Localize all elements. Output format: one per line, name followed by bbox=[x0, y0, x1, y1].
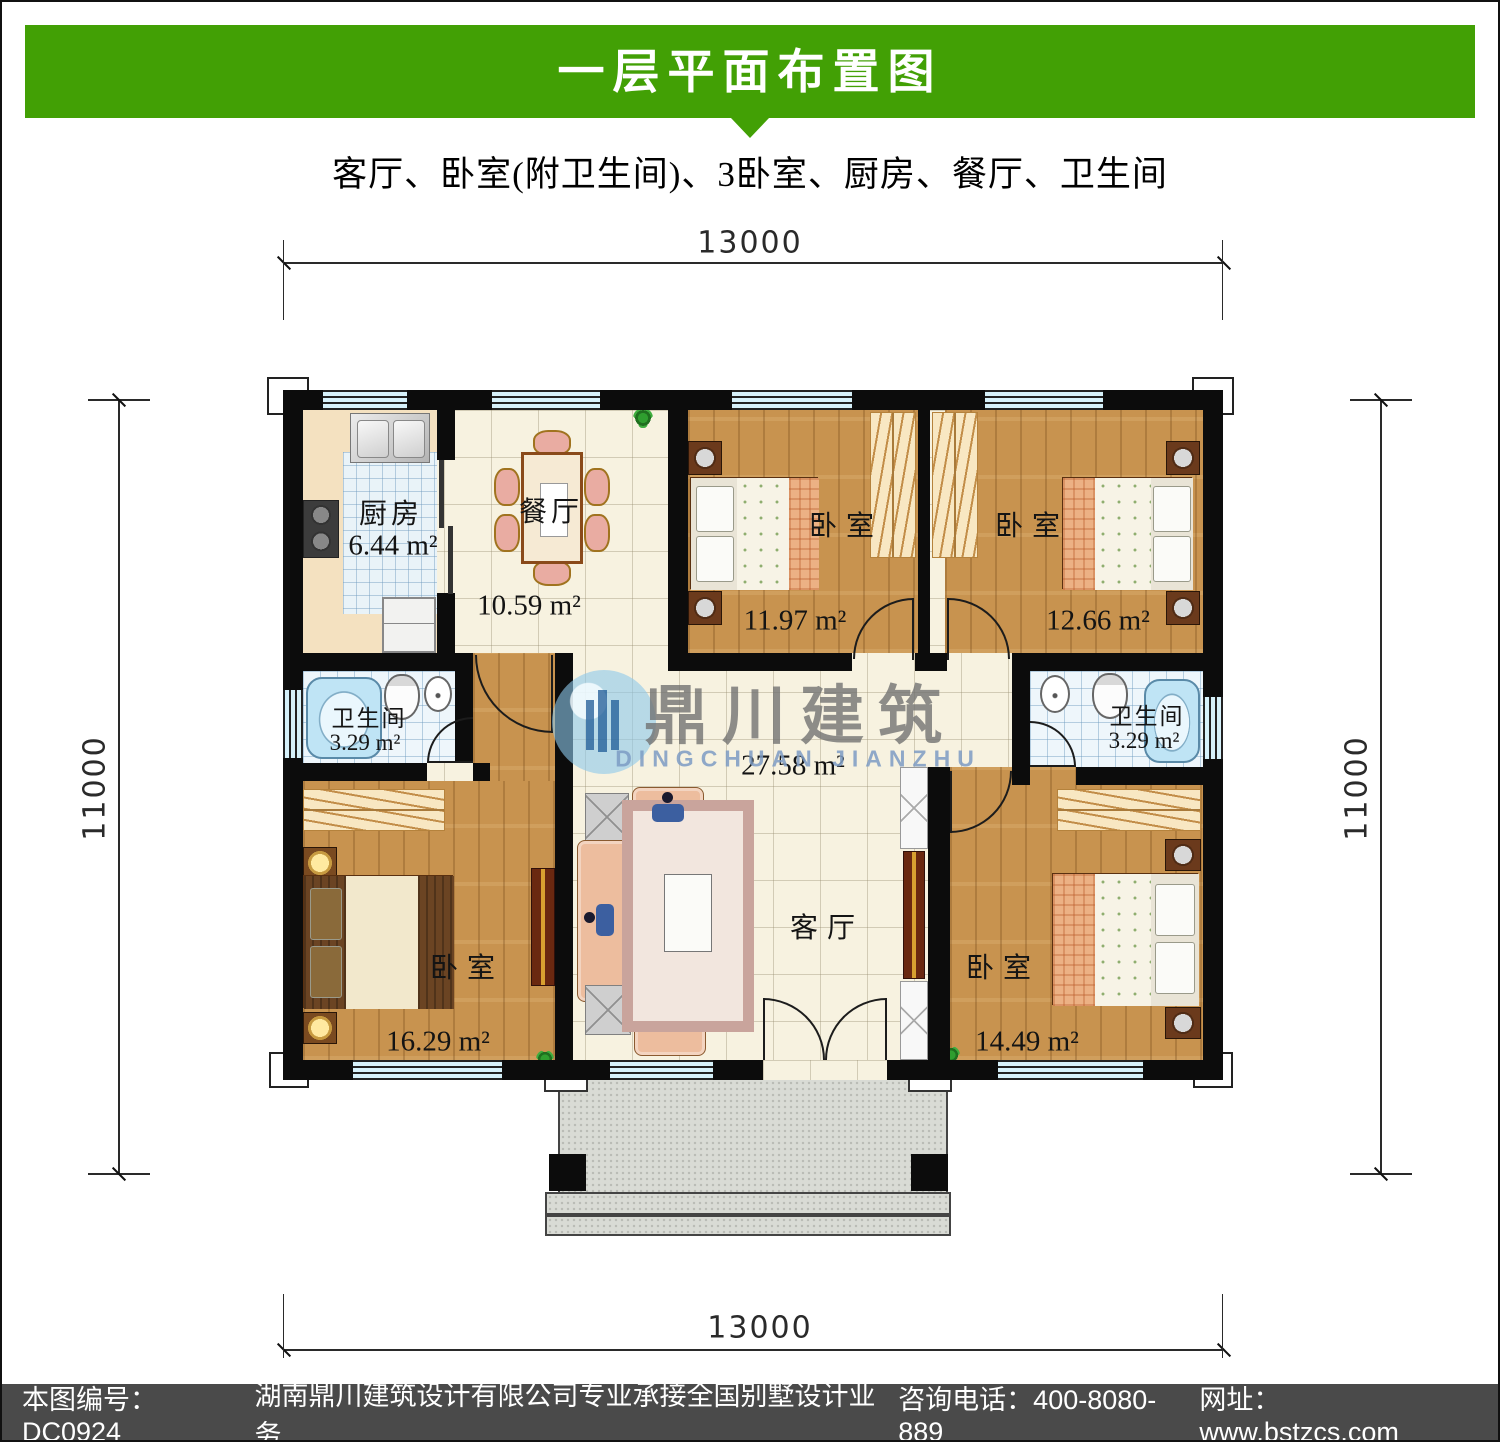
footer-bar: 本图编号：DC0924 湖南鼎川建筑设计有限公司专业承接全国别墅设计业务 咨询电… bbox=[0, 1384, 1500, 1442]
page-title: 一层平面布置图 bbox=[25, 25, 1475, 118]
dim-ext bbox=[283, 240, 284, 320]
banner-pointer-icon bbox=[731, 118, 769, 138]
bedroom-area: 11.97 m² bbox=[744, 605, 847, 638]
bathroom-area: 3.29 m² bbox=[330, 730, 401, 756]
wardrobe bbox=[932, 412, 978, 558]
dining-area: 10.59 m² bbox=[477, 590, 581, 623]
tv-wall-cabinet bbox=[900, 767, 928, 849]
dim-line-right bbox=[1380, 400, 1382, 1175]
wall-segment bbox=[1012, 653, 1203, 671]
header-banner: 一层平面布置图 bbox=[25, 25, 1475, 118]
fridge bbox=[382, 597, 436, 653]
footer-phone: 咨询电话：400-8080-889 bbox=[898, 1378, 1199, 1448]
dim-line-left bbox=[118, 400, 120, 1175]
porch-step bbox=[545, 1215, 951, 1236]
person-figure bbox=[582, 896, 616, 942]
door-leaf bbox=[950, 771, 952, 833]
nightstand bbox=[688, 591, 722, 625]
entry-threshold bbox=[763, 1060, 887, 1080]
bathroom-label: 卫生间 bbox=[332, 699, 407, 733]
dining-chair bbox=[494, 468, 520, 506]
dim-line-top bbox=[283, 262, 1223, 264]
wall-segment bbox=[283, 763, 427, 781]
floor-plan: 厨房 6.44 m² 餐厅 10.59 m² 卧室 11.97 m² 卧室 12… bbox=[0, 0, 1500, 1442]
bed bbox=[1052, 873, 1198, 1005]
porch-slab bbox=[558, 1080, 948, 1192]
plant-icon bbox=[633, 408, 653, 428]
bedroom-label: 卧室 bbox=[809, 504, 883, 544]
bedroom-area: 16.29 m² bbox=[386, 1026, 490, 1059]
window bbox=[283, 690, 303, 758]
nightstand-lamp bbox=[303, 1012, 337, 1044]
kitchen-label: 厨房 bbox=[359, 492, 423, 532]
bathroom-label: 卫生间 bbox=[1110, 697, 1185, 731]
door-leaf bbox=[912, 598, 914, 660]
dining-chair bbox=[494, 514, 520, 552]
sliding-door bbox=[439, 460, 444, 528]
door-leaf bbox=[427, 761, 473, 763]
tv-cabinet bbox=[531, 868, 555, 986]
bedroom-label: 卧室 bbox=[995, 504, 1069, 544]
living-room-label: 客厅 bbox=[790, 906, 864, 946]
dim-line-bottom bbox=[283, 1349, 1223, 1351]
stove bbox=[303, 500, 339, 558]
bedroom-label: 卧室 bbox=[966, 946, 1040, 986]
footer-company: 湖南鼎川建筑设计有限公司专业承接全国别墅设计业务 bbox=[255, 1374, 899, 1452]
window bbox=[353, 1060, 502, 1080]
wardrobe bbox=[303, 789, 445, 831]
window bbox=[1203, 697, 1223, 759]
window bbox=[323, 390, 407, 410]
window bbox=[985, 390, 1103, 410]
wash-basin bbox=[1040, 675, 1070, 713]
watermark-cn: 鼎川建筑 bbox=[644, 665, 956, 757]
wall-segment bbox=[1012, 671, 1030, 767]
tv-unit bbox=[903, 851, 925, 979]
wall-segment bbox=[918, 410, 930, 653]
wall-segment bbox=[437, 593, 455, 653]
wall-segment bbox=[283, 653, 473, 671]
window bbox=[610, 1060, 713, 1080]
person-figure bbox=[648, 792, 688, 826]
nightstand bbox=[1166, 591, 1200, 625]
window bbox=[732, 390, 852, 410]
window bbox=[998, 1060, 1143, 1080]
wall-segment bbox=[1076, 767, 1203, 785]
porch-step bbox=[545, 1192, 951, 1215]
watermark-en: DINGCHUAN JIANZHU bbox=[615, 746, 981, 773]
dining-label: 餐厅 bbox=[519, 490, 583, 530]
kitchen-sink bbox=[350, 413, 430, 463]
bedroom-area: 14.49 m² bbox=[975, 1026, 1079, 1059]
wall-segment bbox=[473, 763, 490, 781]
door-leaf bbox=[947, 598, 949, 660]
room-list-subtitle: 客厅、卧室(附卫生间)、3卧室、厨房、餐厅、卫生间 bbox=[0, 146, 1500, 197]
wardrobe bbox=[1057, 789, 1201, 831]
sliding-door bbox=[448, 526, 453, 594]
bedroom-area: 12.66 m² bbox=[1046, 605, 1150, 638]
bed bbox=[303, 875, 453, 1008]
bed bbox=[690, 477, 818, 589]
window bbox=[492, 390, 600, 410]
porch-column bbox=[911, 1154, 948, 1191]
wall-segment bbox=[1012, 767, 1030, 785]
entry-door-leaf bbox=[885, 998, 887, 1060]
nightstand bbox=[1166, 441, 1200, 475]
kitchen-area: 6.44 m² bbox=[348, 530, 437, 563]
door-leaf bbox=[1030, 765, 1076, 767]
dining-chair bbox=[584, 514, 610, 552]
dim-label-bottom: 13000 bbox=[707, 1311, 812, 1346]
dim-label-right: 11000 bbox=[1340, 735, 1375, 840]
footer-website: 网址：www.bstzcs.com bbox=[1199, 1378, 1478, 1448]
bed bbox=[1062, 477, 1192, 589]
bedroom-label: 卧室 bbox=[430, 946, 504, 986]
coffee-table bbox=[664, 874, 712, 952]
dim-ext bbox=[1222, 1294, 1223, 1358]
dining-chair bbox=[584, 468, 610, 506]
tv-wall-cabinet bbox=[900, 981, 928, 1060]
bathroom-area: 3.29 m² bbox=[1109, 728, 1180, 754]
dim-label-top: 13000 bbox=[697, 226, 802, 261]
dim-label-left: 11000 bbox=[78, 735, 113, 840]
dim-ext bbox=[283, 1294, 284, 1358]
wall-segment bbox=[668, 410, 688, 653]
footer-drawing-id: 本图编号：DC0924 bbox=[22, 1378, 255, 1448]
entry-door-leaf bbox=[763, 998, 765, 1060]
porch-column bbox=[549, 1154, 586, 1191]
wash-basin bbox=[424, 676, 452, 712]
wall-segment bbox=[928, 767, 950, 1060]
wall-segment bbox=[437, 410, 455, 460]
dim-ext bbox=[1222, 240, 1223, 320]
nightstand bbox=[1165, 1007, 1201, 1039]
nightstand bbox=[1165, 839, 1201, 871]
nightstand bbox=[688, 441, 722, 475]
